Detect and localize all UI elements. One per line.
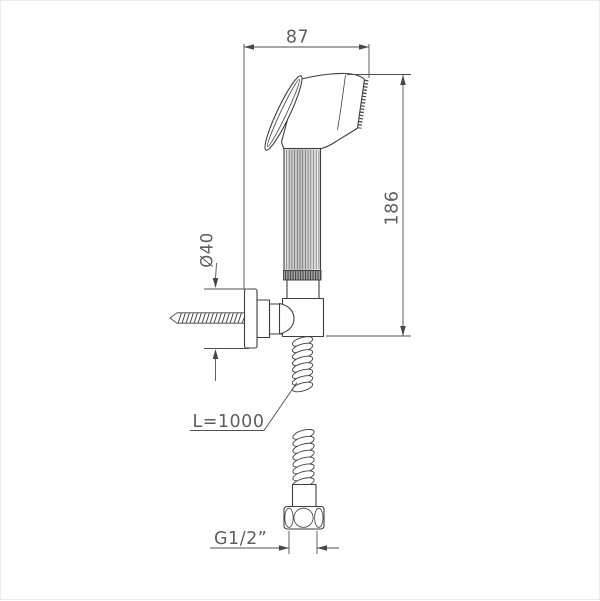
hose-upper-coil [291,335,313,394]
arrow-up-icon [213,349,219,359]
arrow-right-icon [279,545,289,551]
arrow-down-icon [400,326,406,336]
arrow-up-icon [400,75,406,85]
hose-lower-coil [284,427,324,529]
dimension-head-width-label: 87 [286,28,309,48]
dimension-overall-height-label: 186 [383,191,403,226]
handle-grip [284,149,322,299]
arrow-right-icon [359,44,369,50]
mounting-screw [170,313,245,324]
hand-shower-technical-drawing: 87 186 Ø40 L=1000 G1/2” [1,1,600,601]
dimension-thread: G1/2” [210,529,339,554]
dimension-thread-label: G1/2” [214,529,267,549]
dimension-flange-diameter: Ø40 [198,232,250,381]
hose-nut [284,507,324,530]
spray-head [260,73,367,153]
arrow-down-icon [213,278,219,288]
flange-disc [257,300,270,338]
arrow-left-icon [244,44,254,50]
drawing-canvas: 87 186 Ø40 L=1000 G1/2” [0,0,600,600]
arrow-left-icon [317,545,327,551]
wall-flange-plate [245,289,258,348]
handle-collar [287,280,319,299]
dimension-flange-diameter-label: Ø40 [198,232,217,267]
dimension-hose-length-label: L=1000 [193,412,265,432]
dimension-hose-length: L=1000 [190,383,297,433]
screw-thread-hatch [178,313,244,324]
hose-ferrule [293,485,317,507]
hose-nut-body [284,507,324,530]
